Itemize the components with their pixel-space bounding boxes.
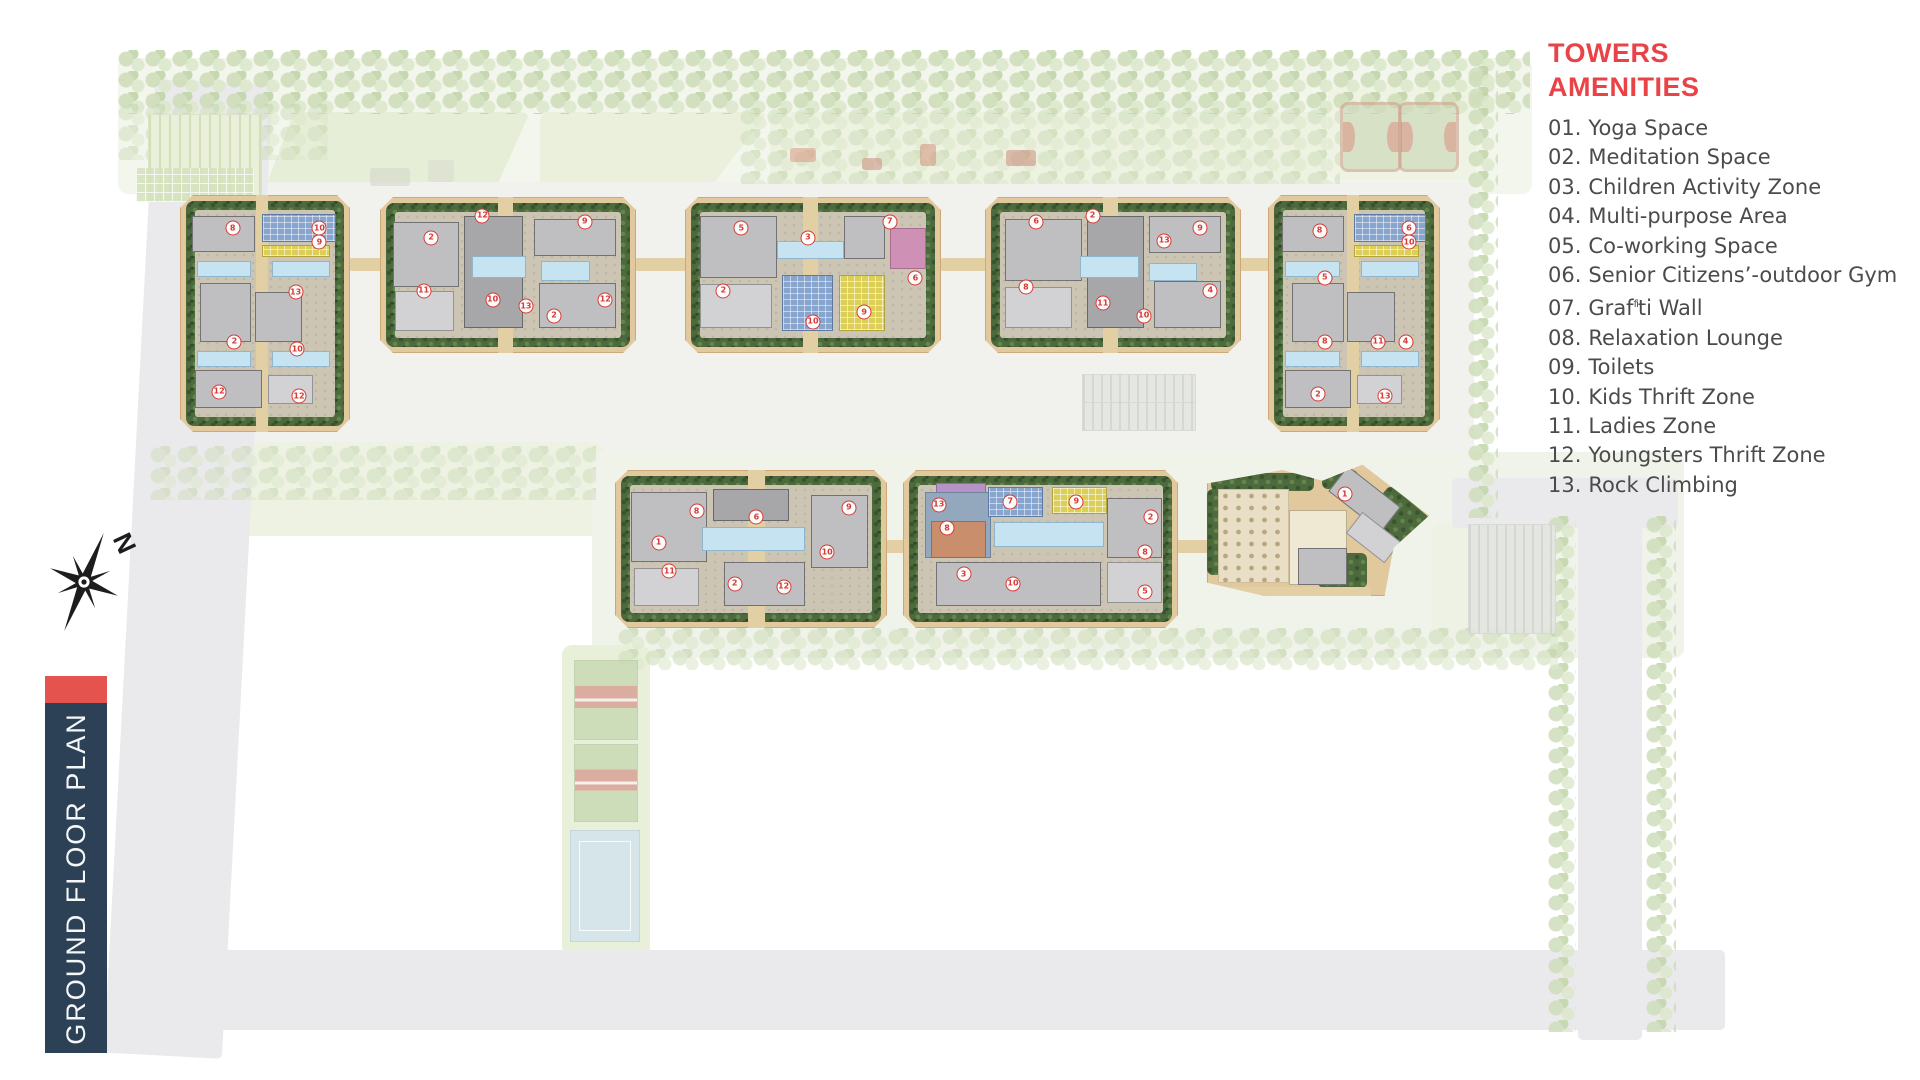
amenity-badge: 10	[1006, 576, 1021, 591]
east-tree-column	[1468, 66, 1498, 518]
amenity-badge: 9	[1069, 494, 1084, 509]
amenity-badge: 1	[651, 535, 666, 550]
pathway-link	[350, 258, 382, 271]
amenity-badge: 4	[1398, 334, 1413, 349]
amenity-badge: 12	[598, 292, 613, 307]
north-label: N	[107, 528, 142, 558]
amenity-badge: 3	[800, 230, 815, 245]
yellow-canopy-grid	[839, 275, 885, 331]
amenity-badge: 12	[776, 579, 791, 594]
amenity-badge: 11	[416, 283, 431, 298]
legend-item: 04.Multi-purpose Area	[1548, 202, 1918, 231]
tower-block-3: 53721096	[685, 197, 941, 353]
umbrella-deck	[1218, 489, 1289, 583]
mid-tree-row	[618, 628, 1558, 670]
building-footprint	[192, 216, 255, 252]
sports-court	[574, 744, 638, 822]
tower-block-2: 2129111013212	[380, 197, 636, 353]
amenity-badge: 2	[1085, 208, 1100, 223]
amenity-badge: 10	[820, 545, 835, 560]
amenity-badge: 10	[485, 292, 500, 307]
amenity-badge: 8	[689, 504, 704, 519]
legend-title-line2: AMENITIES	[1548, 70, 1918, 104]
swimming-pool	[472, 256, 526, 278]
amenity-badge: 6	[1402, 221, 1417, 236]
parking-bay	[1082, 402, 1196, 431]
amenity-badge: 8	[1018, 280, 1033, 295]
amenity-badge: 10	[312, 221, 327, 236]
legend-item: 10.Kids Thrift Zone	[1548, 383, 1918, 412]
amenity-badge: 10	[1136, 308, 1151, 323]
building-footprint	[700, 284, 772, 328]
play-equipment	[920, 144, 936, 166]
amenity-badge: 2	[424, 230, 439, 245]
legend-item: 11.Ladies Zone	[1548, 412, 1918, 441]
amenity-badge: 5	[1138, 584, 1153, 599]
compass-icon: N	[18, 516, 150, 648]
building-footprint	[1292, 283, 1344, 342]
amenity-badge: 8	[1317, 334, 1332, 349]
ground-floor-plan-page: 8109132101212212911101321253721096621398…	[0, 0, 1920, 1080]
amenities-legend: TOWERS AMENITIES 01.Yoga Space02.Meditat…	[1548, 36, 1918, 500]
legend-item: 06.Senior Citizens’-outdoor Gym	[1548, 261, 1918, 290]
swimming-pool	[197, 261, 251, 276]
building-footprint	[1347, 292, 1395, 342]
amenity-badge: 9	[312, 235, 327, 250]
south-road	[185, 950, 1725, 1030]
amenity-badge: 8	[1138, 545, 1153, 560]
legend-item: 05.Co-working Space	[1548, 232, 1918, 261]
building-footprint	[1005, 219, 1082, 281]
page-title: GROUND FLOOR PLAN	[45, 703, 107, 1053]
legend-item: 07.Graffiti Wall	[1548, 290, 1918, 323]
amenity-badge: 7	[1003, 494, 1018, 509]
amenity-badge: 10	[1402, 235, 1417, 250]
amenity-badge: 12	[292, 389, 307, 404]
amenity-badge: 3	[956, 567, 971, 582]
tower-block-6: 18611212109	[615, 470, 887, 628]
amenity-badge: 4	[1203, 283, 1218, 298]
amenity-badge: 2	[716, 283, 731, 298]
swimming-pool	[1080, 256, 1139, 278]
amenity-badge: 9	[577, 214, 592, 229]
amenity-badge: 2	[1143, 510, 1158, 525]
swimming-pool	[541, 261, 590, 281]
tower-block-7: 13798283105	[903, 470, 1178, 628]
top-tree-cluster	[740, 108, 1340, 184]
amenity-badge: 2	[1310, 387, 1325, 402]
legend-item-list: 01.Yoga Space02.Meditation Space03.Child…	[1548, 114, 1918, 500]
swimming-pool	[272, 261, 330, 276]
basketball-court	[1340, 102, 1402, 172]
building-footprint	[844, 216, 885, 260]
swimming-pool	[1361, 351, 1419, 366]
legend-item: 12.Youngsters Thrift Zone	[1548, 441, 1918, 470]
swimming-pool	[702, 527, 805, 551]
sports-court	[574, 660, 638, 740]
play-equipment	[1006, 150, 1036, 166]
amenity-badge: 6	[1029, 214, 1044, 229]
green-band-trees	[150, 446, 596, 500]
building-footprint	[631, 492, 707, 562]
amenity-badge: 9	[1193, 221, 1208, 236]
tower-block-1: 8109132101212	[180, 195, 350, 432]
amenity-badge: 2	[547, 308, 562, 323]
building-footprint	[200, 283, 251, 342]
amenity-badge: 8	[1312, 223, 1327, 238]
amenity-badge: 11	[1371, 334, 1386, 349]
amenity-badge: 6	[749, 510, 764, 525]
building-footprint	[534, 219, 616, 256]
legend-item: 03.Children Activity Zone	[1548, 173, 1918, 202]
tower-block-4: 62139811104	[985, 197, 1241, 353]
pathway-link	[1240, 258, 1270, 271]
amenity-badge: 13	[1157, 233, 1172, 248]
amenity-badge: 11	[662, 564, 677, 579]
amenity-badge: 12	[212, 384, 227, 399]
building-footprint	[1107, 498, 1162, 558]
amenity-badge: 9	[857, 305, 872, 320]
page-title-text: GROUND FLOOR PLAN	[61, 712, 92, 1045]
swimming-pool	[1285, 261, 1340, 276]
amenity-badge: 6	[908, 271, 923, 286]
swimming-pool	[1285, 351, 1340, 366]
swimming-pool	[197, 351, 251, 366]
building-footprint	[1298, 548, 1347, 586]
amenity-badge: 5	[734, 221, 749, 236]
tennis-court	[570, 830, 640, 942]
swimming-pool	[994, 522, 1104, 547]
amenity-badge: 10	[806, 314, 821, 329]
amenity-badge: 13	[288, 285, 303, 300]
amenity-badge: 8	[225, 221, 240, 236]
tower-block-5: 861058114213	[1268, 195, 1440, 432]
building-footprint	[1107, 562, 1162, 603]
legend-item: 01.Yoga Space	[1548, 114, 1918, 143]
east-road-tree-column	[1646, 516, 1676, 1032]
east-road	[1578, 508, 1642, 1040]
pathway-link	[636, 258, 687, 271]
parking-bay	[1468, 524, 1556, 634]
amenity-badge: 10	[290, 342, 305, 357]
amenity-badge: 2	[727, 576, 742, 591]
sidebar-accent-bar	[45, 676, 107, 703]
pathway-link	[886, 540, 905, 553]
amenity-badge: 13	[1377, 389, 1392, 404]
basketball-court	[1398, 102, 1459, 172]
legend-item: 13.Rock Climbing	[1548, 471, 1918, 500]
play-equipment	[862, 158, 882, 170]
amenity-badge: 11	[1095, 296, 1110, 311]
pathway-link	[941, 258, 987, 271]
pathway-link	[1177, 540, 1209, 553]
amenity-badge: 13	[518, 299, 533, 314]
play-equipment	[790, 148, 816, 162]
seating-area	[370, 168, 410, 186]
building-footprint	[195, 370, 261, 408]
amenity-badge: 13	[931, 497, 946, 512]
amenity-badge: 7	[882, 214, 897, 229]
building-footprint	[811, 495, 868, 568]
amenity-badge: 9	[841, 500, 856, 515]
swimming-pool	[1149, 263, 1198, 282]
top-tree-row	[118, 50, 1530, 114]
legend-title-line1: TOWERS	[1548, 36, 1918, 70]
building-footprint	[1005, 287, 1072, 328]
legend-item: 08.Relaxation Lounge	[1548, 324, 1918, 353]
amenity-badge: 8	[940, 521, 955, 536]
pink-zone	[890, 228, 926, 269]
amenity-badge: 2	[227, 334, 242, 349]
parking-bay	[1082, 374, 1196, 403]
seating-area	[428, 160, 454, 182]
amenity-badge: 12	[475, 208, 490, 223]
amenity-badge: 5	[1317, 270, 1332, 285]
legend-item: 09.Toilets	[1548, 353, 1918, 382]
swimming-pool	[1361, 261, 1419, 276]
legend-item: 02.Meditation Space	[1548, 143, 1918, 172]
amenity-badge: 1	[1337, 487, 1352, 502]
